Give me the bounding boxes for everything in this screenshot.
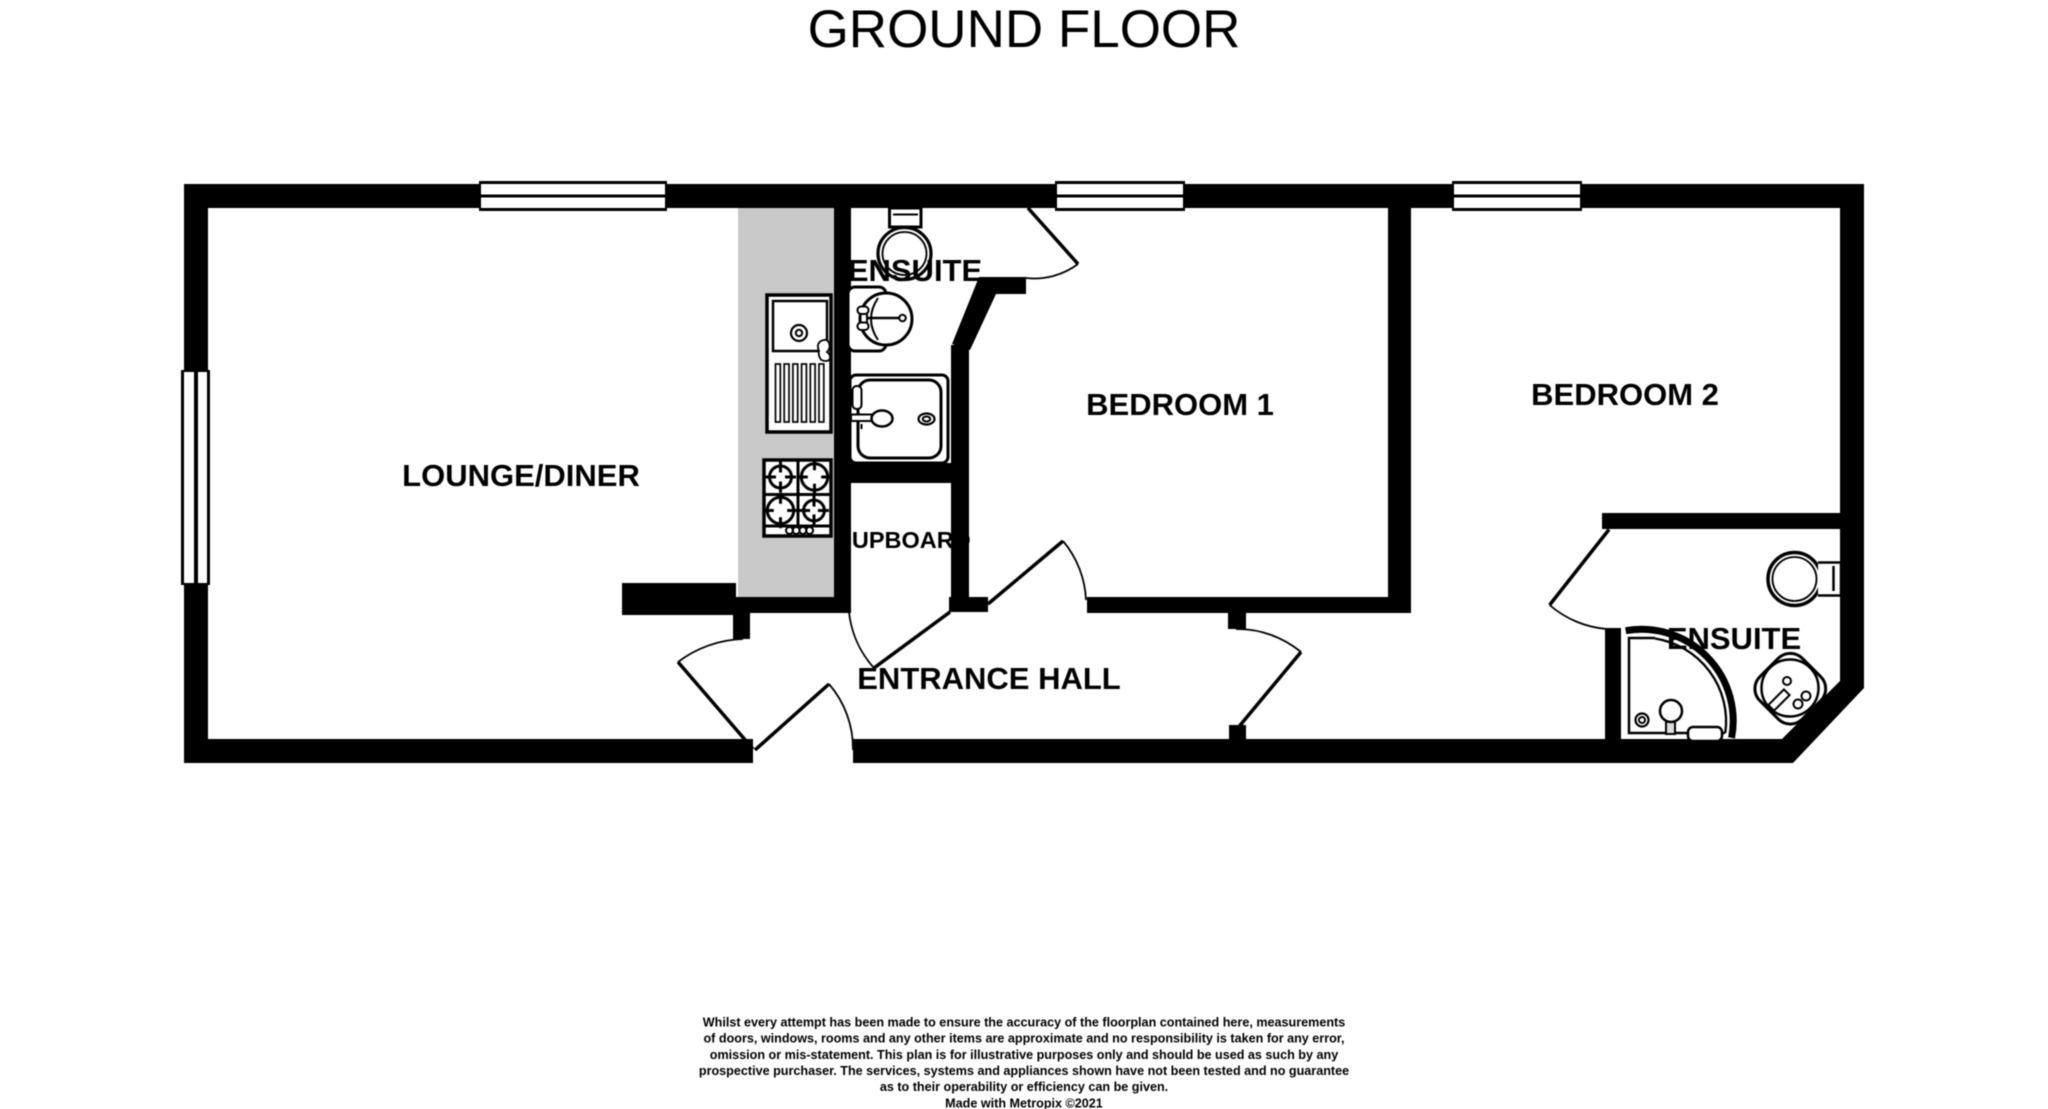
svg-text:CUPBOARD: CUPBOARD xyxy=(835,527,971,553)
svg-text:Made with Metropix ©2021: Made with Metropix ©2021 xyxy=(945,1096,1103,1109)
svg-text:GROUND FLOOR: GROUND FLOOR xyxy=(808,0,1241,59)
svg-text:ENSUITE: ENSUITE xyxy=(848,253,982,288)
svg-text:omission or mis-statement. Thi: omission or mis-statement. This plan is … xyxy=(710,1048,1338,1062)
svg-text:ENTRANCE HALL: ENTRANCE HALL xyxy=(857,661,1121,696)
svg-text:prospective purchaser. The ser: prospective purchaser. The services, sys… xyxy=(699,1064,1349,1078)
svg-text:BEDROOM 1: BEDROOM 1 xyxy=(1086,387,1274,422)
svg-text:Whilst every attempt has been: Whilst every attempt has been made to en… xyxy=(703,1015,1345,1029)
svg-text:ENSUITE: ENSUITE xyxy=(1667,621,1801,656)
svg-text:as to their operability or eff: as to their operability or efficiency ca… xyxy=(880,1080,1168,1094)
svg-text:BEDROOM 2: BEDROOM 2 xyxy=(1531,377,1719,412)
svg-text:LOUNGE/DINER: LOUNGE/DINER xyxy=(402,458,640,493)
svg-text:of doors, windows, rooms and a: of doors, windows, rooms and any other i… xyxy=(703,1032,1344,1046)
